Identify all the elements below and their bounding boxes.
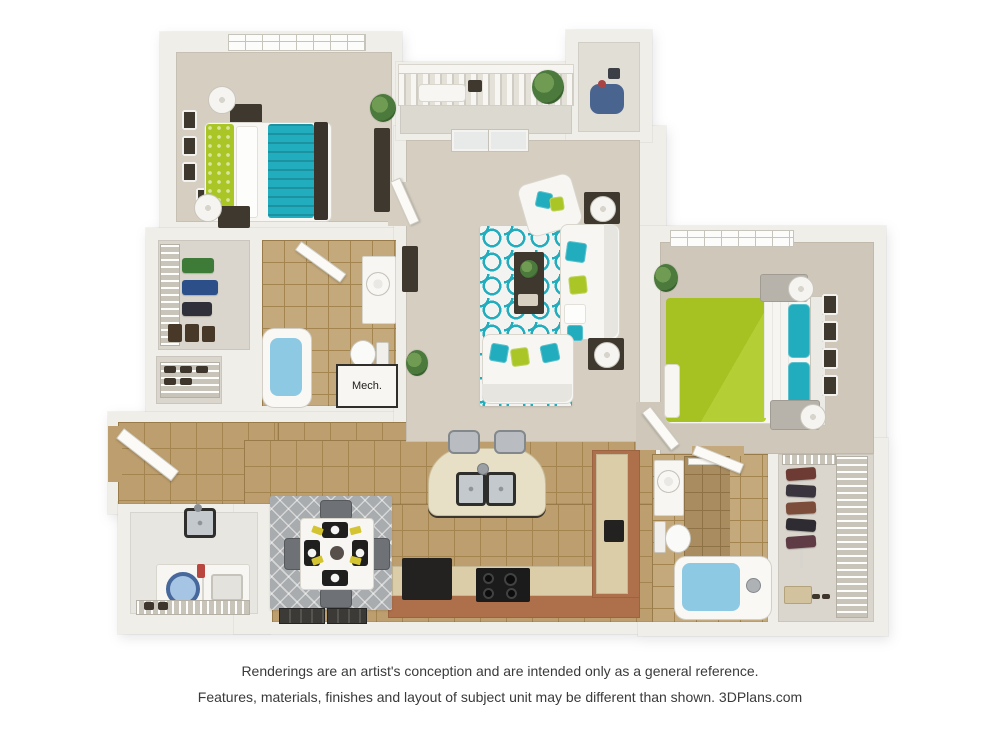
mech-closet-label: Mech. bbox=[352, 380, 382, 392]
storage-blue-bag bbox=[590, 84, 624, 114]
bedroom2-dresser bbox=[664, 364, 680, 418]
shoe-closet-shoes bbox=[164, 366, 176, 373]
bath2-toilet bbox=[665, 524, 691, 553]
closet1-boots bbox=[185, 324, 199, 342]
closet2-clothes bbox=[786, 535, 817, 549]
island-sink-right bbox=[486, 472, 516, 506]
closet2-clothes bbox=[786, 518, 817, 532]
disclaimer-text: Renderings are an artist's conception an… bbox=[0, 658, 1000, 710]
closet1-boots bbox=[202, 326, 215, 342]
closet2-clothes bbox=[786, 484, 817, 498]
utility-sink bbox=[184, 508, 216, 538]
balcony-plant bbox=[532, 70, 564, 104]
bedroom1-lamp-top bbox=[208, 86, 236, 114]
media-console bbox=[402, 246, 418, 292]
shoe-closet-shoes bbox=[180, 366, 192, 373]
shoe-closet-shoes bbox=[180, 378, 192, 385]
bedroom2-wall-art bbox=[822, 375, 838, 396]
dining-chair-bottom bbox=[320, 588, 352, 608]
bedroom2-plant bbox=[654, 264, 678, 292]
bedroom2-wall-art bbox=[822, 321, 838, 342]
bath2-shower-wall bbox=[684, 456, 730, 556]
bedroom1-bed-white-pillows bbox=[236, 126, 258, 218]
loveseat-lime-pillow bbox=[510, 347, 530, 367]
coffee-table-tray bbox=[518, 294, 538, 306]
shoe-closet-shoes bbox=[164, 378, 176, 385]
sofa-lime-pillow bbox=[568, 275, 588, 295]
closet2-shoes bbox=[812, 594, 820, 599]
island-sink-left bbox=[456, 472, 486, 506]
sofa-backrest bbox=[604, 224, 618, 338]
closet1-clothes-navy bbox=[182, 302, 212, 316]
bedroom2-lamp-top bbox=[788, 276, 814, 302]
closet2-shoe-box bbox=[784, 586, 812, 604]
closet1-clothes-blue bbox=[182, 280, 218, 295]
bedroom2-window bbox=[670, 230, 794, 247]
island-faucet bbox=[477, 463, 489, 475]
shoe-closet-shoes bbox=[196, 366, 208, 373]
table-centerpiece bbox=[330, 546, 344, 560]
french-door-right bbox=[489, 130, 528, 151]
loveseat-teal-pillow-2 bbox=[539, 342, 560, 363]
bedroom1-dresser bbox=[374, 128, 390, 212]
bath2-tub-water bbox=[682, 563, 740, 611]
armchair-lime-pillow bbox=[549, 196, 565, 212]
refrigerator bbox=[402, 558, 452, 600]
dryer-door bbox=[211, 574, 243, 601]
bedroom2-lamp-bottom bbox=[800, 404, 826, 430]
floorplan: Mech. bbox=[0, 0, 1000, 750]
bedroom1-wall-art bbox=[182, 136, 197, 156]
dining-window-left bbox=[279, 608, 325, 624]
sofa-white-pillow bbox=[564, 304, 586, 324]
french-door-left bbox=[452, 130, 491, 151]
burner bbox=[504, 573, 517, 586]
range-cooktop bbox=[476, 568, 530, 602]
bedroom1-wall-art bbox=[182, 110, 197, 130]
bath2-sink bbox=[657, 470, 680, 493]
living-plant bbox=[406, 350, 428, 376]
burner bbox=[483, 573, 494, 584]
bedroom1-lamp-bottom bbox=[194, 194, 222, 222]
dining-window-right bbox=[327, 608, 367, 624]
bedroom2-lime-duvet bbox=[666, 298, 766, 422]
closet2-shoes bbox=[822, 594, 830, 599]
coffee-table-plant bbox=[520, 260, 538, 278]
storage-red-item bbox=[598, 80, 606, 88]
bedroom1-wall-art bbox=[182, 162, 197, 182]
coffee-maker bbox=[604, 520, 624, 542]
utility-sink-faucet bbox=[194, 504, 202, 512]
closet1-boots bbox=[168, 324, 182, 342]
patio-bench bbox=[418, 84, 466, 102]
bar-stool-left bbox=[448, 430, 480, 454]
side-table-top-lamp bbox=[590, 196, 616, 222]
laundry-shoes bbox=[158, 602, 168, 610]
bedroom2-wall-art bbox=[822, 348, 838, 369]
bath1-sink bbox=[366, 272, 390, 296]
bedroom1-bed-teal-blanket bbox=[268, 124, 314, 218]
bedroom1-bed-footboard bbox=[314, 122, 328, 220]
place-setting bbox=[322, 522, 348, 538]
mechanical-closet: Mech. bbox=[336, 364, 398, 408]
bath1-tub-water bbox=[270, 338, 302, 396]
closet2-clothes bbox=[786, 467, 817, 481]
closet2-wire-shelving bbox=[836, 456, 868, 618]
bath2-tub-faucet bbox=[746, 578, 761, 593]
storage-dark-item bbox=[608, 68, 620, 79]
dining-chair-top bbox=[320, 500, 352, 520]
side-table-bottom-lamp bbox=[594, 342, 620, 368]
closet1-clothes-green bbox=[182, 258, 214, 273]
burner bbox=[483, 588, 494, 599]
closet2-wire-shelf-top bbox=[782, 454, 836, 465]
loveseat-teal-pillow bbox=[489, 343, 510, 364]
bedroom1-plant bbox=[370, 94, 396, 122]
bar-stool-right bbox=[494, 430, 526, 454]
bedroom1-window bbox=[228, 34, 366, 51]
laundry-shoes bbox=[144, 602, 154, 610]
place-setting bbox=[322, 570, 348, 586]
loveseat-backrest bbox=[482, 384, 572, 402]
bedroom1-nightstand-bottom bbox=[218, 206, 250, 228]
disclaimer-line-1: Renderings are an artist's conception an… bbox=[0, 658, 1000, 684]
closet2-clothes bbox=[786, 501, 817, 515]
floorplan-canvas: Mech. Renderings are an artist's concept… bbox=[0, 0, 1000, 750]
bedroom2-wall-art bbox=[822, 294, 838, 315]
detergent-bottle bbox=[197, 564, 205, 578]
patio-side-table bbox=[468, 80, 482, 92]
bedroom2-teal-pillow-top bbox=[788, 304, 810, 358]
burner bbox=[506, 588, 517, 599]
disclaimer-line-2: Features, materials, finishes and layout… bbox=[0, 684, 1000, 710]
sofa-teal-pillow bbox=[565, 241, 588, 264]
